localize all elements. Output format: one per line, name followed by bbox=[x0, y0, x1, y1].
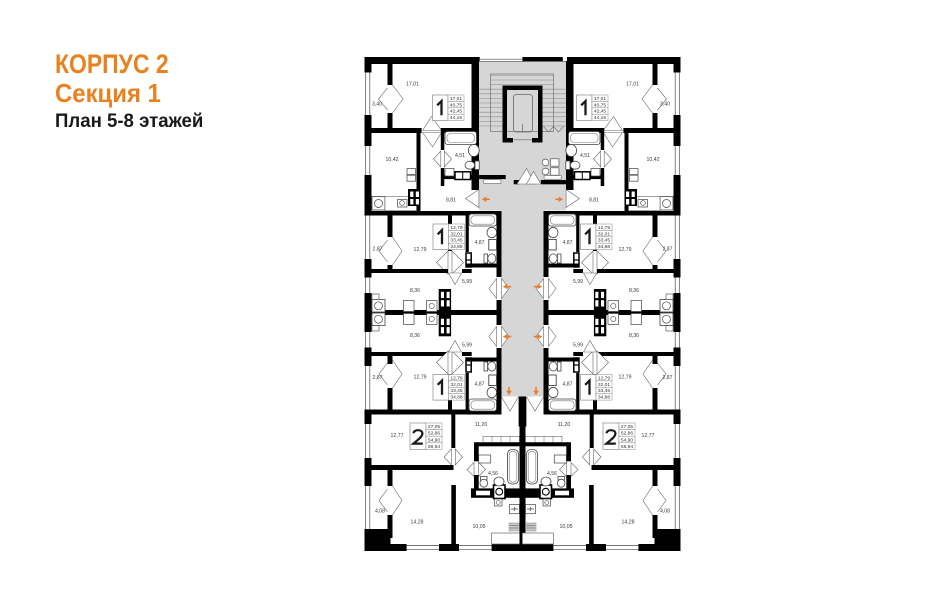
svg-text:2,87: 2,87 bbox=[662, 375, 672, 381]
svg-text:52,86: 52,86 bbox=[428, 431, 441, 437]
svg-text:14,28: 14,28 bbox=[622, 519, 635, 525]
svg-text:34,88: 34,88 bbox=[598, 244, 611, 250]
svg-text:40,75: 40,75 bbox=[450, 102, 463, 108]
svg-text:2,87: 2,87 bbox=[662, 246, 672, 252]
svg-text:33,45: 33,45 bbox=[450, 388, 463, 394]
svg-text:44,15: 44,15 bbox=[450, 115, 463, 121]
svg-text:12,79: 12,79 bbox=[619, 247, 632, 253]
svg-text:34,88: 34,88 bbox=[450, 395, 463, 401]
svg-text:12,77: 12,77 bbox=[642, 433, 655, 439]
svg-text:17,01: 17,01 bbox=[406, 81, 419, 87]
svg-text:5,99: 5,99 bbox=[573, 342, 583, 348]
svg-text:8,81: 8,81 bbox=[446, 197, 456, 203]
svg-text:40,75: 40,75 bbox=[594, 102, 607, 108]
svg-text:33,45: 33,45 bbox=[450, 238, 463, 244]
svg-text:2,87: 2,87 bbox=[372, 375, 382, 381]
svg-text:17,01: 17,01 bbox=[626, 81, 639, 87]
svg-text:12,79: 12,79 bbox=[450, 375, 463, 381]
svg-text:10,42: 10,42 bbox=[386, 157, 399, 163]
svg-text:12,77: 12,77 bbox=[391, 433, 404, 439]
svg-text:42,45: 42,45 bbox=[594, 109, 607, 115]
svg-text:34,88: 34,88 bbox=[450, 244, 463, 250]
svg-text:4,87: 4,87 bbox=[474, 240, 484, 246]
svg-text:8,36: 8,36 bbox=[629, 288, 639, 294]
svg-text:5,99: 5,99 bbox=[462, 279, 472, 285]
svg-text:12,79: 12,79 bbox=[598, 225, 611, 231]
svg-text:12,79: 12,79 bbox=[414, 374, 427, 380]
svg-text:4,08: 4,08 bbox=[660, 508, 670, 514]
svg-text:4,56: 4,56 bbox=[488, 471, 498, 477]
svg-text:8,36: 8,36 bbox=[410, 288, 420, 294]
svg-text:56,94: 56,94 bbox=[428, 444, 441, 450]
svg-text:32,01: 32,01 bbox=[598, 382, 611, 388]
svg-text:8,81: 8,81 bbox=[589, 197, 599, 203]
svg-text:33,45: 33,45 bbox=[598, 388, 611, 394]
svg-text:4,87: 4,87 bbox=[562, 240, 572, 246]
svg-text:52,86: 52,86 bbox=[621, 431, 634, 437]
svg-text:12,79: 12,79 bbox=[598, 375, 611, 381]
svg-text:12,79: 12,79 bbox=[414, 247, 427, 253]
svg-text:14,28: 14,28 bbox=[411, 519, 424, 525]
svg-text:11,20: 11,20 bbox=[558, 422, 571, 428]
svg-text:10,05: 10,05 bbox=[473, 524, 486, 530]
svg-text:34,88: 34,88 bbox=[598, 395, 611, 401]
svg-text:54,90: 54,90 bbox=[428, 437, 441, 443]
svg-text:11,20: 11,20 bbox=[475, 422, 488, 428]
svg-text:42,45: 42,45 bbox=[450, 109, 463, 115]
svg-text:8,36: 8,36 bbox=[629, 333, 639, 339]
svg-text:32,01: 32,01 bbox=[450, 231, 463, 237]
svg-text:8,36: 8,36 bbox=[410, 333, 420, 339]
svg-text:56,94: 56,94 bbox=[621, 444, 634, 450]
svg-text:27,05: 27,05 bbox=[428, 424, 441, 430]
svg-text:3,40: 3,40 bbox=[660, 101, 670, 107]
svg-text:10,42: 10,42 bbox=[647, 157, 660, 163]
svg-text:32,01: 32,01 bbox=[450, 382, 463, 388]
svg-text:4,56: 4,56 bbox=[547, 471, 557, 477]
svg-text:17,01: 17,01 bbox=[450, 96, 463, 102]
svg-text:4,87: 4,87 bbox=[474, 381, 484, 387]
svg-text:10,05: 10,05 bbox=[560, 524, 573, 530]
svg-text:27,05: 27,05 bbox=[621, 424, 634, 430]
svg-text:44,15: 44,15 bbox=[594, 115, 607, 121]
svg-text:32,01: 32,01 bbox=[598, 231, 611, 237]
svg-text:17,01: 17,01 bbox=[594, 96, 607, 102]
svg-text:4,08: 4,08 bbox=[375, 508, 385, 514]
svg-text:12,79: 12,79 bbox=[450, 225, 463, 231]
svg-text:54,90: 54,90 bbox=[621, 437, 634, 443]
svg-text:2,87: 2,87 bbox=[372, 246, 382, 252]
svg-text:5,99: 5,99 bbox=[462, 342, 472, 348]
svg-text:12,79: 12,79 bbox=[619, 374, 632, 380]
svg-text:3,40: 3,40 bbox=[372, 101, 382, 107]
svg-text:5,99: 5,99 bbox=[573, 279, 583, 285]
svg-text:4,87: 4,87 bbox=[562, 381, 572, 387]
svg-text:4,51: 4,51 bbox=[580, 153, 590, 159]
svg-text:4,51: 4,51 bbox=[455, 153, 465, 159]
svg-text:33,45: 33,45 bbox=[598, 238, 611, 244]
